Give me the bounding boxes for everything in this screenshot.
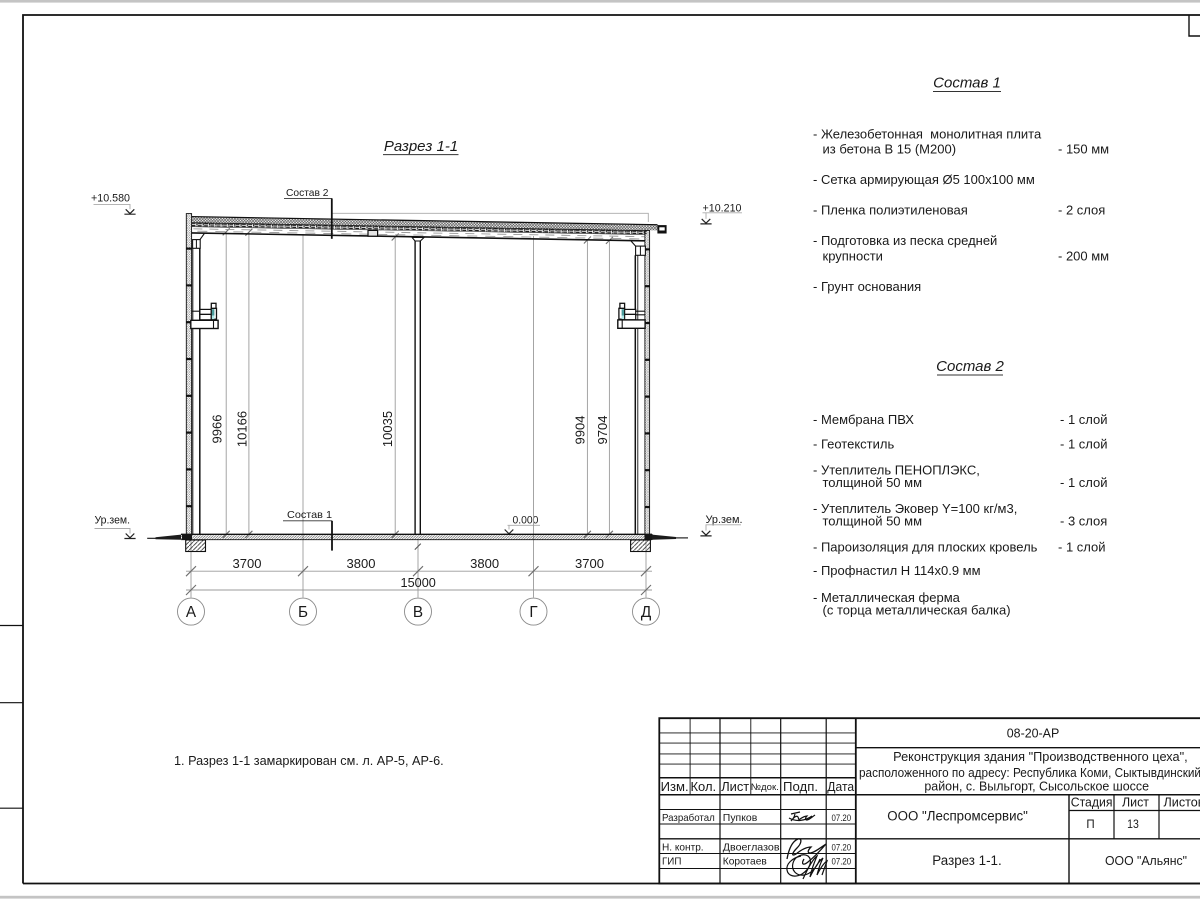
svg-text:- 1 слой: - 1 слой — [1060, 412, 1108, 427]
svg-text:Стадия: Стадия — [1071, 796, 1113, 810]
svg-text:- Геотекстиль: - Геотекстиль — [813, 437, 894, 452]
svg-text:- 1 слой: - 1 слой — [1060, 437, 1108, 452]
svg-text:(с торца металлическая балка): (с торца металлическая балка) — [823, 602, 1011, 617]
svg-text:Лист: Лист — [721, 779, 749, 794]
svg-text:15000: 15000 — [401, 575, 436, 590]
svg-text:Состав 2: Состав 2 — [936, 358, 1004, 375]
svg-text:07.20: 07.20 — [832, 857, 852, 868]
svg-text:Н. контр.: Н. контр. — [662, 842, 704, 853]
svg-text:- 3 слоя: - 3 слоя — [1060, 514, 1107, 529]
svg-text:В: В — [413, 604, 423, 621]
svg-text:- 200 мм: - 200 мм — [1058, 249, 1109, 264]
svg-text:3800: 3800 — [470, 556, 499, 571]
svg-text:Кол.: Кол. — [690, 779, 716, 794]
svg-text:- Подготовка из песка средней: - Подготовка из песка средней — [813, 233, 997, 248]
svg-text:10035: 10035 — [380, 411, 395, 447]
svg-text:П: П — [1086, 819, 1094, 831]
svg-text:Разработал: Разработал — [662, 812, 715, 824]
svg-text:- Профнастил Н 114х0.9 мм: - Профнастил Н 114х0.9 мм — [813, 563, 981, 578]
svg-text:0.000: 0.000 — [513, 514, 539, 526]
svg-text:1. Разрез 1-1 замаркирован см.: 1. Разрез 1-1 замаркирован см. л. АР-5, … — [174, 753, 444, 768]
svg-text:ООО "Леспромсервис": ООО "Леспромсервис" — [887, 809, 1028, 824]
svg-text:Двоеглазов: Двоеглазов — [723, 842, 780, 853]
svg-text:Листов: Листов — [1164, 796, 1200, 810]
svg-text:- Мембрана ПВХ: - Мембрана ПВХ — [813, 412, 914, 427]
svg-text:07.20: 07.20 — [832, 813, 852, 824]
svg-text:Изм.: Изм. — [661, 779, 689, 794]
svg-text:- 150 мм: - 150 мм — [1058, 141, 1109, 156]
svg-text:- Железобетонная монолитная п: - Железобетонная монолитная плита — [813, 127, 1042, 142]
svg-text:толщиной 50 мм: толщиной 50 мм — [823, 475, 923, 490]
svg-text:- Грунт основания: - Грунт основания — [813, 279, 921, 294]
svg-text:9704: 9704 — [595, 416, 610, 445]
svg-text:3700: 3700 — [233, 556, 262, 571]
svg-text:3800: 3800 — [347, 556, 376, 571]
svg-text:+10.580: +10.580 — [91, 193, 130, 205]
svg-text:А: А — [186, 604, 197, 621]
svg-text:9904: 9904 — [573, 416, 588, 445]
svg-text:Разрез 1-1.: Разрез 1-1. — [932, 853, 1001, 868]
svg-text:ООО "Альянс": ООО "Альянс" — [1105, 853, 1187, 868]
svg-text:- Сетка армирующая Ø5 100х100: - Сетка армирующая Ø5 100х100 мм — [813, 172, 1035, 187]
svg-text:13: 13 — [1127, 819, 1139, 831]
svg-text:9966: 9966 — [210, 415, 225, 444]
svg-text:Д: Д — [641, 604, 652, 621]
svg-text:Разрез 1-1: Разрез 1-1 — [384, 138, 458, 155]
svg-text:ГИП: ГИП — [662, 857, 681, 868]
svg-text:10166: 10166 — [234, 411, 249, 447]
svg-text:Г: Г — [529, 604, 537, 621]
svg-text:- 1 слой: - 1 слой — [1058, 539, 1106, 554]
svg-text:Состав 1: Состав 1 — [287, 509, 332, 521]
svg-text:08-20-АР: 08-20-АР — [1007, 727, 1060, 741]
svg-text:Пупков: Пупков — [723, 813, 758, 824]
svg-text:- 2 слоя: - 2 слоя — [1058, 203, 1105, 218]
svg-text:- Пароизоляция для плоских кро: - Пароизоляция для плоских кровель — [813, 539, 1038, 554]
svg-text:толщиной 50 мм: толщиной 50 мм — [823, 514, 923, 529]
svg-text:- 1 слой: - 1 слой — [1060, 475, 1108, 490]
svg-text:Ур.зем.: Ур.зем. — [95, 514, 131, 526]
svg-text:Б: Б — [298, 604, 308, 621]
svg-text:07.20: 07.20 — [832, 842, 852, 853]
svg-text:из бетона В 15 (М200): из бетона В 15 (М200) — [823, 141, 957, 156]
svg-text:крупности: крупности — [823, 249, 883, 264]
svg-text:Состав 1: Состав 1 — [933, 75, 1001, 92]
svg-text:№док.: №док. — [751, 782, 779, 793]
svg-text:Дата: Дата — [827, 780, 854, 794]
svg-text:Подп.: Подп. — [783, 779, 818, 794]
svg-text:Состав 2: Состав 2 — [286, 187, 329, 199]
svg-text:Ур.зем.: Ур.зем. — [706, 514, 743, 526]
svg-text:- Пленка полиэтиленовая: - Пленка полиэтиленовая — [813, 203, 968, 218]
svg-text:Коротаев: Коротаев — [723, 857, 768, 868]
svg-text:3700: 3700 — [575, 556, 604, 571]
svg-text:Лист: Лист — [1122, 796, 1149, 810]
svg-text:Реконструкция здания "Производ: Реконструкция здания "Производственного … — [893, 749, 1188, 764]
svg-text:район, с. Выльгорт, Сысольское: район, с. Выльгорт, Сысольское шоссе — [924, 779, 1149, 794]
